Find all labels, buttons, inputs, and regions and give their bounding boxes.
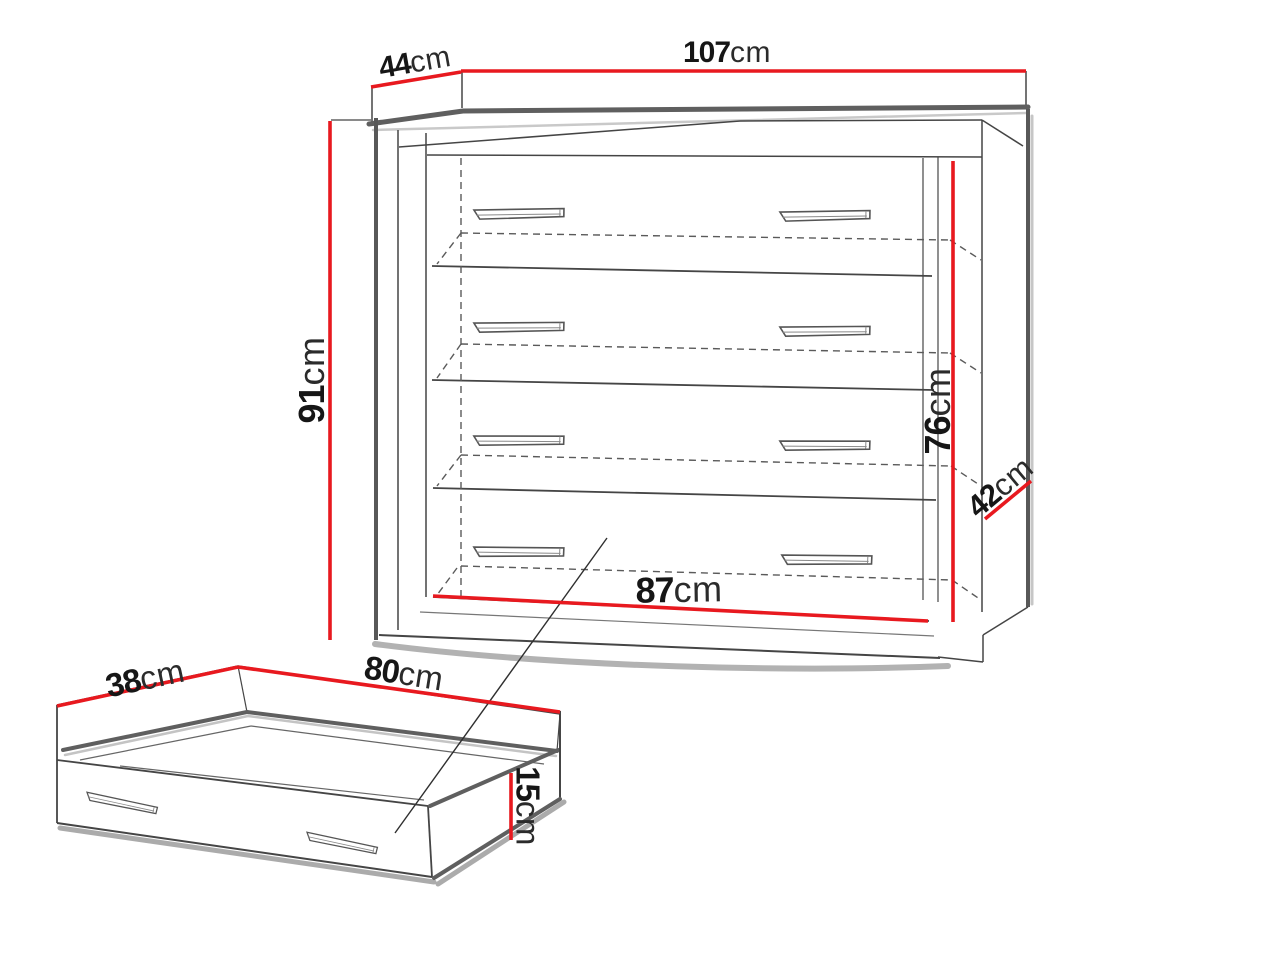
dim-label-cabinet-interior-height: 76cm [920,367,956,454]
dim-value: 15 [510,766,547,801]
dim-unit: cm [407,40,453,80]
dim-value: 76 [917,416,958,454]
dim-unit: cm [673,568,723,610]
furniture-line-drawing [0,0,1280,960]
dim-unit: cm [730,36,771,69]
dim-label-drawer-height: 15cm [512,766,545,846]
dim-label-cabinet-interior-width: 87cm [635,571,723,609]
underbed-drawer-handles [85,790,377,857]
dim-label-cabinet-height: 91cm [294,336,330,423]
cabinet-interior-dashed-lines [437,158,981,600]
dim-unit: cm [917,367,958,416]
dim-value: 80 [362,648,402,690]
dim-value: 91 [291,385,332,423]
diagram-canvas: 107cm 44cm 91cm 76cm 42cm 87cm 38cm 80cm… [0,0,1280,960]
dim-unit: cm [291,336,332,385]
dim-label-cabinet-top-width: 107cm [683,38,771,68]
dim-unit: cm [396,654,446,698]
dim-value: 87 [635,569,674,611]
dim-value: 107 [683,36,730,69]
dim-unit: cm [510,801,547,846]
